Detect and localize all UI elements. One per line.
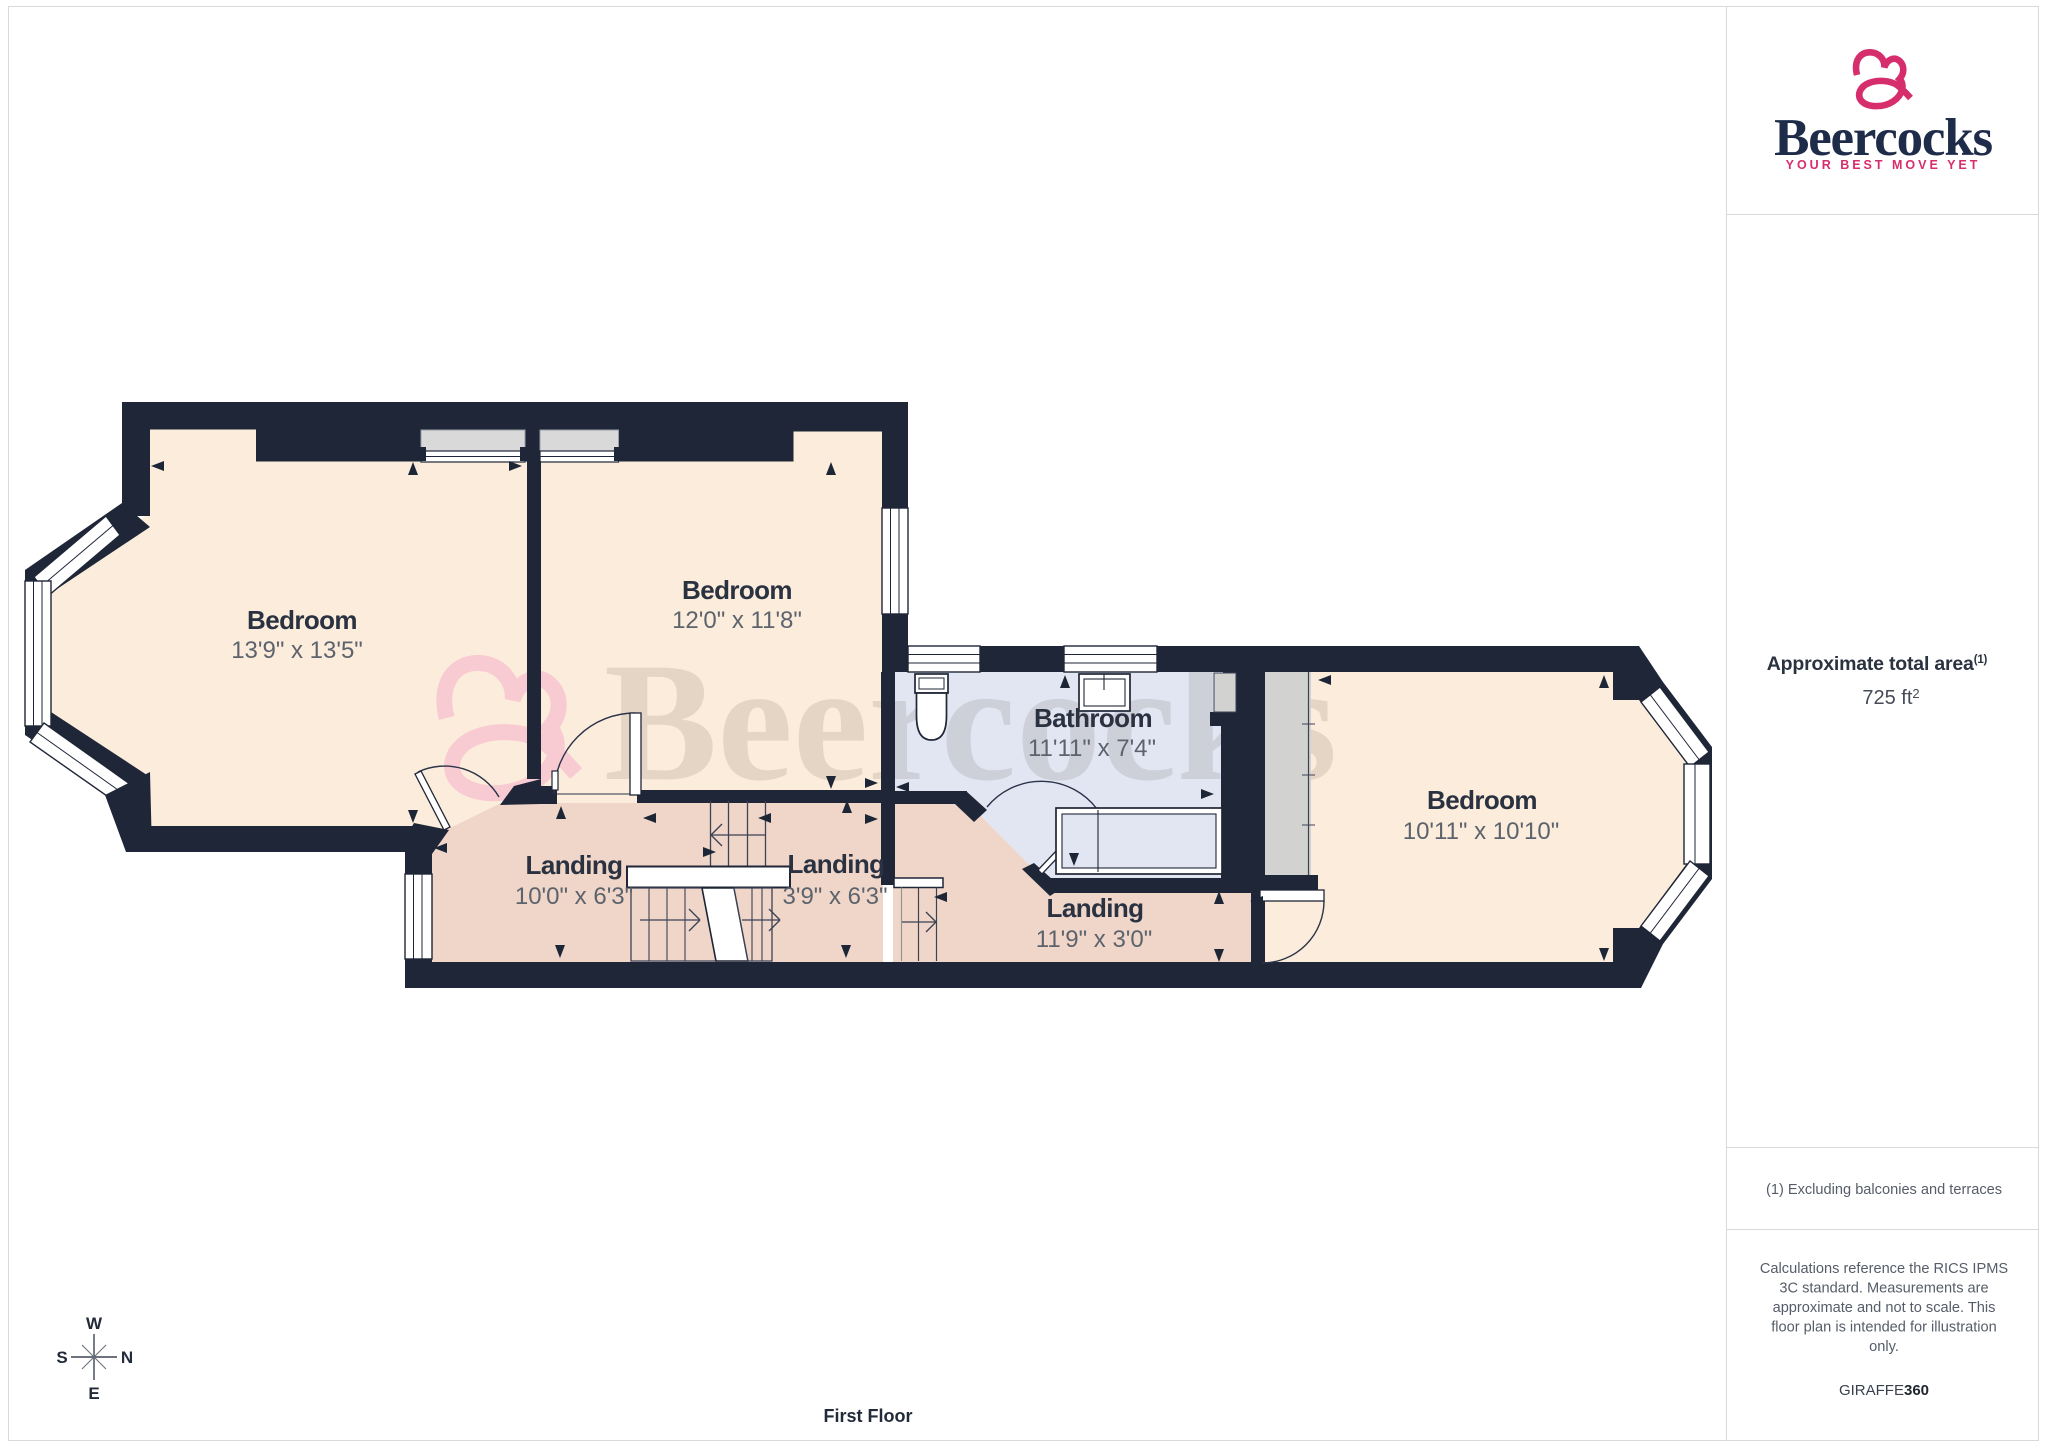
svg-text:11'9" x 3'0": 11'9" x 3'0" [1036, 926, 1153, 953]
svg-text:Landing: Landing [526, 850, 623, 880]
svg-text:Landing: Landing [788, 849, 885, 879]
svg-text:3'9" x 6'3": 3'9" x 6'3" [783, 883, 888, 910]
svg-text:GIRAFFE360: GIRAFFE360 [1839, 1382, 1929, 1399]
svg-text:only.: only. [1869, 1339, 1899, 1355]
svg-text:Bedroom: Bedroom [1427, 785, 1537, 815]
svg-text:S: S [56, 1348, 67, 1367]
svg-text:3C standard. Measurements are: 3C standard. Measurements are [1779, 1281, 1988, 1297]
svg-text:11'11" x 7'4": 11'11" x 7'4" [1028, 735, 1156, 762]
svg-text:approximate and not to scale.: approximate and not to scale. This [1773, 1300, 1996, 1316]
svg-text:(1) Excluding balconies and te: (1) Excluding balconies and terraces [1766, 1182, 2002, 1198]
svg-text:First Floor: First Floor [824, 1406, 913, 1426]
svg-text:E: E [88, 1384, 99, 1403]
svg-text:Bedroom: Bedroom [247, 605, 357, 635]
svg-text:W: W [86, 1314, 103, 1333]
svg-text:N: N [121, 1348, 133, 1367]
svg-text:725 ft2: 725 ft2 [1862, 686, 1919, 709]
svg-text:Bathroom: Bathroom [1034, 703, 1152, 733]
svg-text:10'11" x 10'10": 10'11" x 10'10" [1403, 818, 1560, 845]
svg-text:Approximate total area(1): Approximate total area(1) [1767, 653, 1988, 675]
svg-text:floor plan is intended for ill: floor plan is intended for illustration [1771, 1320, 1997, 1336]
svg-text:Calculations reference the RIC: Calculations reference the RICS IPMS [1760, 1261, 2008, 1277]
svg-text:12'0" x 11'8": 12'0" x 11'8" [672, 607, 802, 634]
svg-text:Landing: Landing [1047, 893, 1144, 923]
svg-text:YOUR BEST MOVE YET: YOUR BEST MOVE YET [1786, 158, 1981, 172]
svg-text:13'9" x 13'5": 13'9" x 13'5" [231, 637, 363, 664]
svg-text:Bedroom: Bedroom [682, 575, 792, 605]
svg-text:10'0" x 6'3": 10'0" x 6'3" [515, 883, 633, 910]
